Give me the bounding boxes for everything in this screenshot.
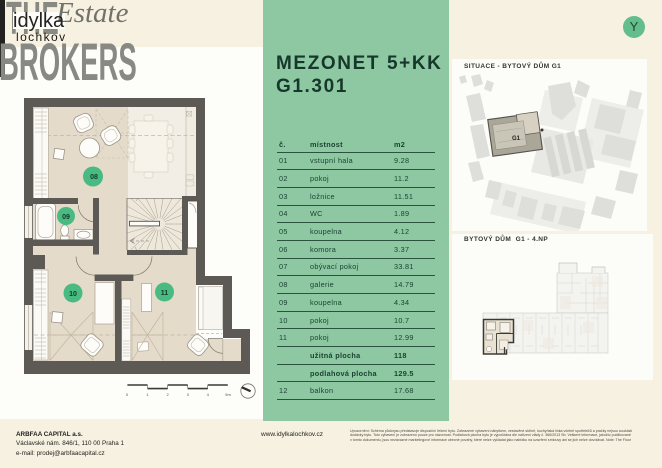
svg-text:3: 3 (187, 392, 190, 397)
svg-text:09: 09 (62, 214, 70, 221)
svg-text:G1: G1 (512, 136, 521, 142)
svg-text:5m: 5m (225, 392, 231, 397)
svg-text:10: 10 (69, 291, 77, 298)
svg-text:1: 1 (146, 392, 149, 397)
svg-text:11: 11 (161, 290, 169, 297)
svg-text:2: 2 (166, 392, 169, 397)
svg-text:08: 08 (90, 174, 98, 181)
svg-text:4: 4 (207, 392, 210, 397)
svg-text:0: 0 (126, 392, 129, 397)
